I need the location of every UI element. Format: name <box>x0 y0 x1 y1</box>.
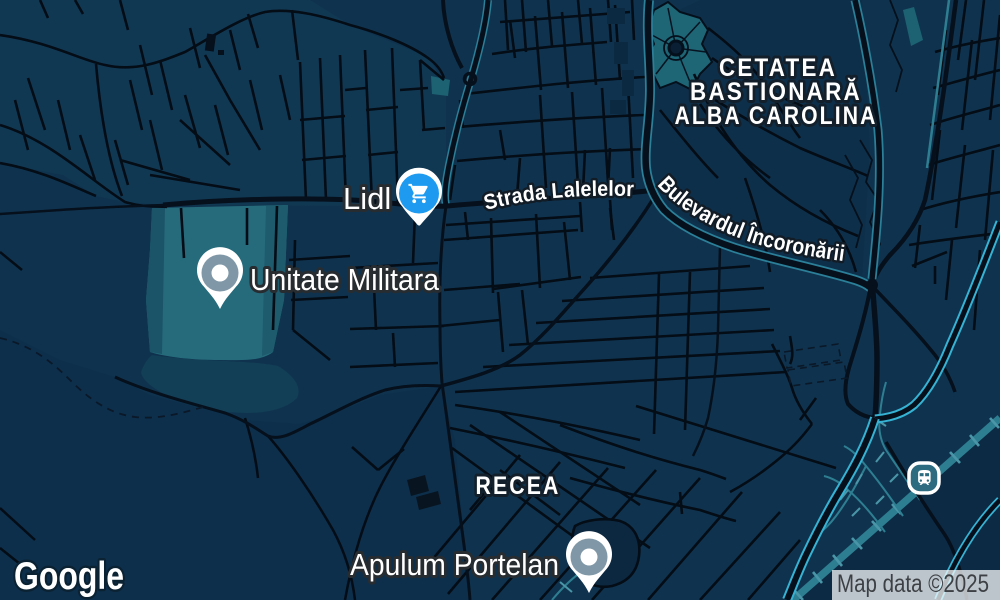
svg-text:ALBA CAROLINA: ALBA CAROLINA <box>675 102 878 130</box>
svg-text:Unitate Militara: Unitate Militara <box>250 262 440 297</box>
svg-text:Lidl: Lidl <box>343 181 391 216</box>
svg-text:Google: Google <box>14 555 124 598</box>
svg-text:Map data ©2025: Map data ©2025 <box>837 570 989 598</box>
svg-text:Apulum Portelan: Apulum Portelan <box>350 547 559 582</box>
svg-text:RECEA: RECEA <box>476 472 561 500</box>
